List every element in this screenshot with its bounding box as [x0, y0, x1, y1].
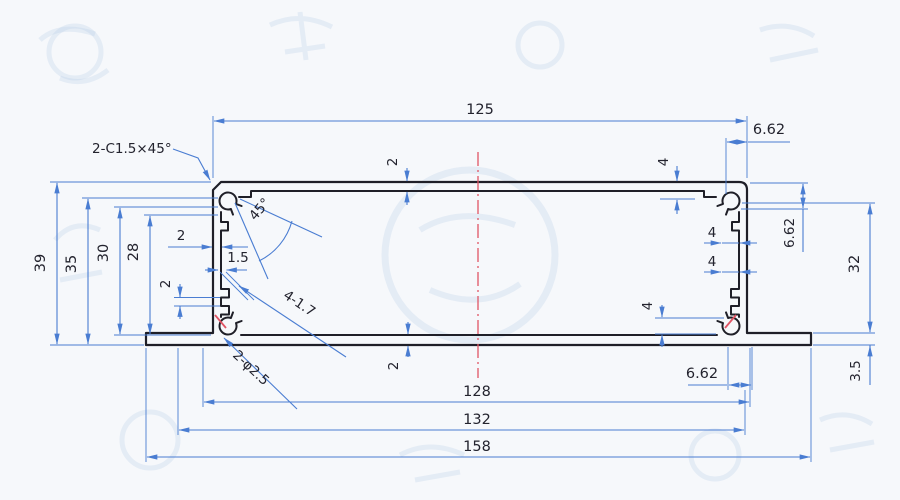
angle-callout-label: 45° — [246, 195, 274, 224]
dim-bottom-width-mid: 132 — [178, 348, 745, 435]
dim-offset-top-right-label: 6.62 — [753, 122, 785, 138]
dim-wall-left-label: 2 — [177, 228, 186, 244]
dim-wall-step-lower: 4 — [704, 254, 757, 272]
dim-bottom-width-inner: 128 — [203, 348, 750, 407]
dim-slot-width-label: 1.5 — [227, 250, 248, 266]
profile-cross-section-drawing: 125 6.62 4 6.62 32 3.5 — [0, 0, 900, 500]
dim-wall-bottom: 2 — [386, 322, 408, 370]
dim-boss-bottom-right-label: 4 — [640, 302, 656, 311]
dim-overall-height: 39 — [33, 182, 211, 345]
dim-wall-bottom-label: 2 — [386, 362, 402, 371]
dim-flange-thickness-label: 3.5 — [848, 360, 864, 381]
hole-note: 2-φ2.5 — [224, 338, 297, 409]
angle-callout: 45° — [235, 195, 322, 279]
screw-boss-top-right — [717, 193, 739, 215]
dim-offset-right-label: 6.62 — [782, 218, 798, 248]
hole-note-label: 2-φ2.5 — [229, 347, 272, 389]
dim-height-to-slot: 35 — [64, 198, 218, 344]
dim-inner-height-upper-label: 30 — [96, 244, 112, 262]
dim-top-width-label: 125 — [466, 102, 494, 118]
dim-offset-right: 6.62 — [741, 183, 808, 252]
dim-inner-height-upper: 30 — [96, 207, 218, 335]
dim-offset-bottom-right-label: 6.62 — [686, 366, 718, 382]
dim-bottom-width-overall-label: 158 — [463, 439, 491, 455]
dim-bottom-width-mid-label: 132 — [463, 412, 491, 428]
dim-wall-step-upper-label: 4 — [708, 225, 717, 241]
dim-boss-top-right: 4 — [656, 158, 695, 214]
dim-flange-thickness: 3.5 — [813, 345, 875, 385]
dim-overall-height-label: 39 — [33, 254, 49, 272]
dim-wall-top-label: 2 — [385, 158, 401, 167]
slot-note-label: 4-1.7 — [280, 287, 318, 320]
dim-cavity-height: 32 — [742, 203, 875, 333]
drawing-sheet: 125 6.62 4 6.62 32 3.5 — [0, 0, 900, 500]
dim-groove-left: 2 — [158, 280, 220, 319]
slot-note: 4-1.7 — [239, 286, 346, 357]
dim-inner-height-lower-label: 28 — [126, 243, 142, 261]
dim-groove-left-label: 2 — [158, 280, 174, 289]
dim-height-to-slot-label: 35 — [64, 255, 80, 273]
dim-offset-bottom-right: 6.62 — [686, 347, 752, 390]
dim-wall-step-lower-label: 4 — [708, 254, 717, 270]
chamfer-note: 2-C1.5×45° — [92, 141, 210, 180]
watermark — [40, 12, 874, 480]
dim-wall-left: 2 — [168, 228, 248, 247]
dim-wall-step-upper: 4 — [704, 225, 757, 243]
dim-cavity-height-label: 32 — [847, 255, 863, 273]
dim-bottom-width-inner-label: 128 — [463, 384, 491, 400]
chamfer-note-label: 2-C1.5×45° — [92, 141, 172, 157]
right-wall-inner-face — [731, 212, 739, 317]
dim-boss-bottom-right: 4 — [640, 302, 724, 347]
dim-inner-height-lower: 28 — [126, 215, 218, 334]
dim-boss-top-right-label: 4 — [656, 158, 672, 167]
